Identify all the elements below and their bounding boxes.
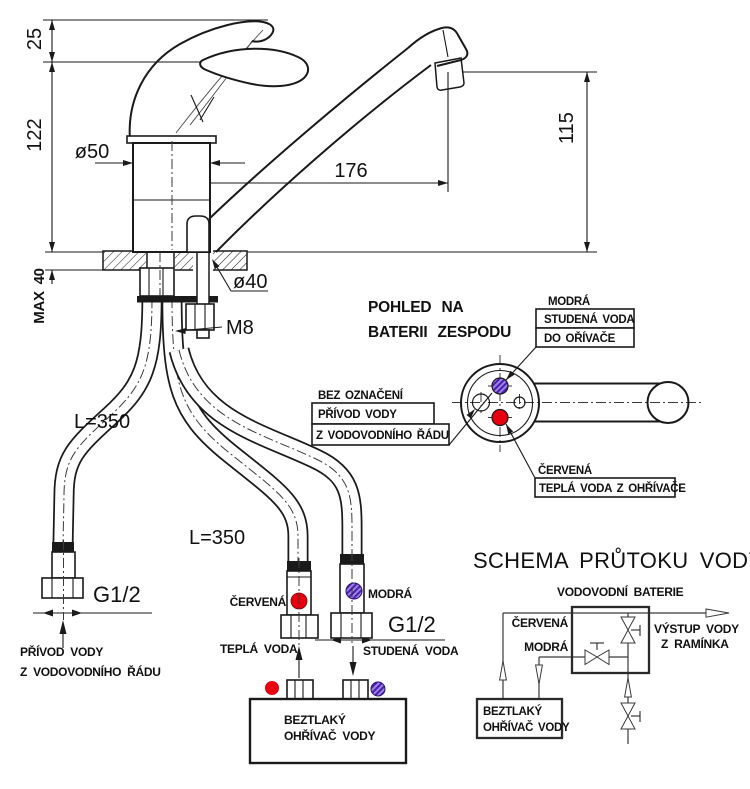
dim-m8: M8 (226, 317, 254, 339)
label-red: ČERVENÁ (230, 594, 287, 609)
schema-blue-label: MODRÁ (524, 639, 568, 654)
schema-heater-line1: BEZTLAKÝ (483, 705, 543, 718)
dim-l350-mid: L=350 (189, 527, 245, 549)
bv-blue-label: MODRÁ (548, 295, 590, 308)
schema-heater-line2: OHŘÍVAČ VODY (483, 721, 570, 734)
dim-dia40: ø40 (233, 271, 267, 293)
hot-hole-red (492, 410, 508, 426)
shank-nut (140, 268, 174, 296)
schema-red-label: ČERVENÁ (512, 615, 569, 630)
schema-battery-box (572, 607, 649, 673)
label-hot-water: TEPLÁ VODA (220, 641, 298, 656)
dim-l350-left: L=350 (74, 411, 130, 433)
dim-max40: MAX 40 (31, 268, 48, 323)
schema-out-line1: VÝSTUP VODY (654, 621, 739, 636)
spout-lower-edge (216, 65, 431, 252)
bv-plain-box2: Z VODOVODNÍHO ŘÁDU (316, 429, 449, 442)
bv-blue-box1: STUDENÁ VODA (544, 313, 634, 326)
spout-collar (187, 216, 209, 252)
drawing-canvas: 25 122 115 ø50 176 MAX 40 ø40 M8 L=350 L… (0, 0, 750, 789)
spout-tip (408, 27, 467, 66)
m8-nut (186, 304, 214, 330)
bv-plain-box1: PŘÍVOD VODY (318, 408, 397, 421)
supply-nut (42, 578, 83, 598)
blue-mark-cold-hose (346, 583, 362, 599)
dim-g12-left: G1/2 (93, 582, 141, 607)
bottom-view-title1: POHLED NA (368, 299, 463, 316)
bv-red-box: TEPLÁ VODA Z OHŘÍVAČE (539, 482, 686, 495)
schema-battery-label: VODOVODNÍ BATERIE (557, 584, 684, 599)
label-supply-line1: PŘÍVOD VODY (20, 644, 103, 659)
blue-mark-heater (371, 682, 385, 696)
cold-hole-blue (492, 378, 508, 394)
dim-dia50: ø50 (75, 141, 109, 163)
heater-label-line1: BEZTLAKÝ (284, 712, 346, 727)
label-supply-line2: Z VODOVODNÍHO ŘÁDU (20, 664, 161, 679)
dim-122: 122 (24, 118, 46, 151)
bv-red-label: ČERVENÁ (538, 464, 592, 477)
bottom-view-title2: BATERII ZESPODU (368, 324, 511, 341)
dim-25: 25 (24, 28, 46, 50)
handle-lever-grip (200, 49, 308, 87)
schema-out-line2: Z RAMÍNKA (661, 636, 729, 651)
schema-title: SCHEMA PRŮTOKU VODY (473, 548, 750, 573)
bv-plain-label: BEZ OZNAČENÍ (318, 389, 404, 402)
technical-drawing: 25 122 115 ø50 176 MAX 40 ø40 M8 L=350 L… (0, 0, 750, 789)
heater-label-line2: OHŘÍVAČ VODY (284, 728, 375, 743)
label-cold-water: STUDENÁ VODA (363, 643, 459, 658)
label-blue: MODRÁ (368, 586, 412, 601)
heater-stub-hot (287, 680, 313, 699)
red-mark-heater (265, 681, 279, 695)
dim-176: 176 (334, 160, 367, 182)
bv-blue-box2: DO OŘÍVAČE (544, 332, 616, 345)
dim-g12-mid: G1/2 (388, 612, 436, 637)
dim-115: 115 (556, 112, 578, 144)
heater-stub-cold (343, 680, 368, 699)
